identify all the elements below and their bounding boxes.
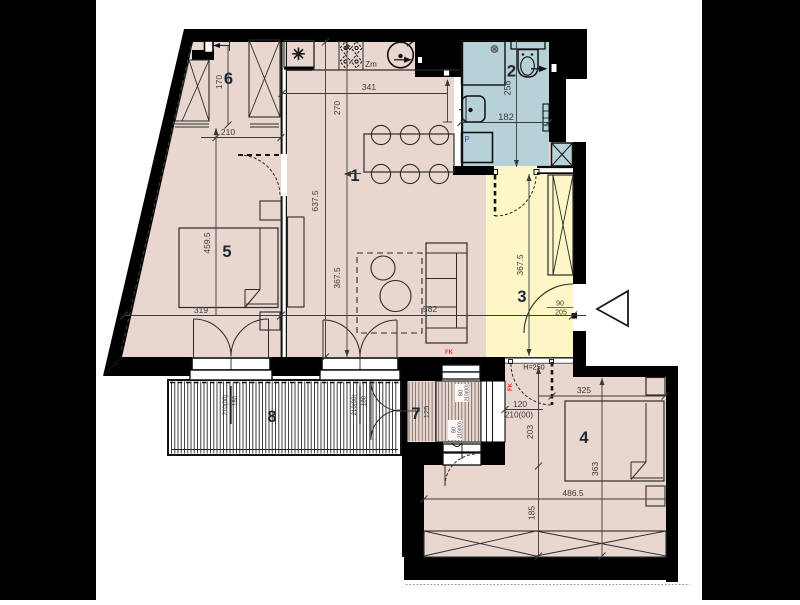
svg-text:8: 8 (267, 408, 276, 426)
svg-text:H=250: H=250 (523, 363, 544, 372)
svg-text:1: 1 (350, 167, 359, 185)
svg-text:367.5: 367.5 (332, 267, 342, 289)
svg-text:258: 258 (503, 80, 513, 95)
svg-text:210(00): 210(00) (458, 421, 464, 439)
svg-text:459.5: 459.5 (202, 232, 212, 254)
svg-text:210(00): 210(00) (505, 411, 533, 420)
svg-text:582: 582 (423, 304, 437, 314)
svg-text:6: 6 (224, 70, 233, 88)
svg-text:210(00): 210(00) (223, 395, 229, 416)
svg-text:182: 182 (498, 112, 514, 123)
svg-text:5: 5 (222, 243, 231, 261)
svg-text:367.5: 367.5 (515, 254, 525, 276)
svg-text:210: 210 (221, 127, 235, 137)
svg-text:319: 319 (194, 305, 208, 315)
svg-text:210(00): 210(00) (352, 395, 358, 416)
svg-text:3: 3 (517, 288, 526, 306)
svg-text:180: 180 (233, 395, 239, 406)
svg-text:2: 2 (507, 63, 516, 81)
svg-text:486.5: 486.5 (562, 488, 584, 498)
svg-text:341: 341 (362, 82, 376, 92)
svg-text:270: 270 (332, 101, 342, 115)
svg-text:Zm: Zm (365, 60, 377, 69)
svg-text:185: 185 (527, 506, 537, 520)
svg-text:170: 170 (214, 75, 224, 89)
svg-text:363: 363 (590, 462, 600, 476)
svg-text:210(00): 210(00) (465, 384, 471, 402)
svg-text:FK: FK (508, 382, 514, 391)
svg-text:325: 325 (577, 385, 591, 395)
svg-text:90: 90 (556, 301, 564, 308)
svg-text:203: 203 (525, 425, 535, 439)
svg-text:4: 4 (579, 429, 589, 447)
svg-text:125: 125 (422, 406, 431, 419)
svg-text:180: 180 (362, 395, 368, 406)
svg-text:P: P (464, 135, 469, 144)
svg-text:7: 7 (411, 405, 420, 423)
svg-text:FK: FK (445, 350, 454, 356)
svg-text:205: 205 (555, 310, 567, 317)
svg-text:120: 120 (513, 399, 527, 409)
svg-text:637.5: 637.5 (310, 190, 320, 212)
